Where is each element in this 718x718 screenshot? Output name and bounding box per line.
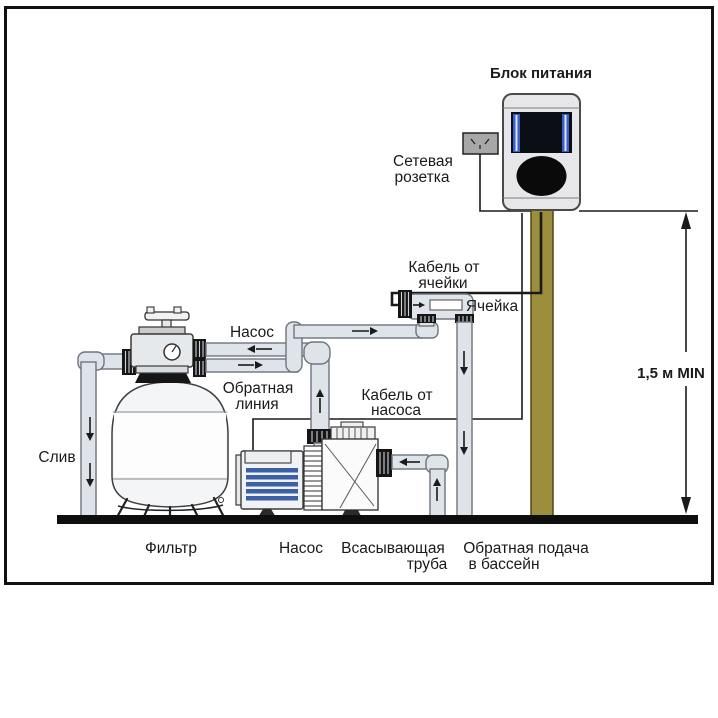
label-suction-line1: Всасывающая — [341, 540, 445, 557]
ground-line — [57, 515, 698, 524]
psu-knob — [517, 156, 567, 196]
power-socket — [463, 133, 498, 154]
label-filter: Фильтр — [145, 540, 197, 557]
label-pump-line: Насос — [230, 324, 274, 341]
label-return-line2: линия — [235, 396, 278, 413]
label-suction-line2: труба — [407, 556, 448, 573]
coupling — [417, 314, 436, 323]
label-cell-cable-line1: Кабель от — [408, 259, 479, 276]
label-cell: Ячейка — [466, 298, 519, 315]
pool-system-diagram: Блок питания Сетевая розетка Кабель от я… — [0, 0, 718, 718]
coupling — [193, 359, 206, 377]
coupling — [193, 339, 206, 359]
cell-window — [430, 300, 462, 310]
strainer-lid — [331, 427, 375, 440]
label-drain: Слив — [38, 449, 75, 466]
label-pool-return-line2: в бассейн — [468, 556, 539, 573]
schematic-page: Блок питания Сетевая розетка Кабель от я… — [0, 0, 718, 718]
chlorinator-cell — [398, 290, 474, 323]
pump-fins — [304, 446, 322, 510]
tank-drain-plug — [219, 498, 224, 503]
label-socket-line1: Сетевая — [393, 153, 453, 170]
filter-tank — [112, 371, 228, 519]
label-cell-cable-line2: ячейки — [418, 275, 467, 292]
power-supply-unit — [503, 94, 580, 210]
strainer-pot — [322, 439, 378, 510]
label-pump-cable-line2: насоса — [371, 402, 421, 419]
coupling — [376, 449, 392, 477]
label-socket-line2: розетка — [395, 169, 450, 186]
label-min-height: 1,5 м MIN — [637, 365, 705, 382]
label-return-line1: Обратная — [223, 380, 294, 397]
label-pool-return-line1: Обратная подача — [463, 540, 589, 557]
coupling — [398, 290, 412, 318]
label-pump: Насос — [279, 540, 323, 557]
label-power-supply: Блок питания — [490, 65, 592, 82]
